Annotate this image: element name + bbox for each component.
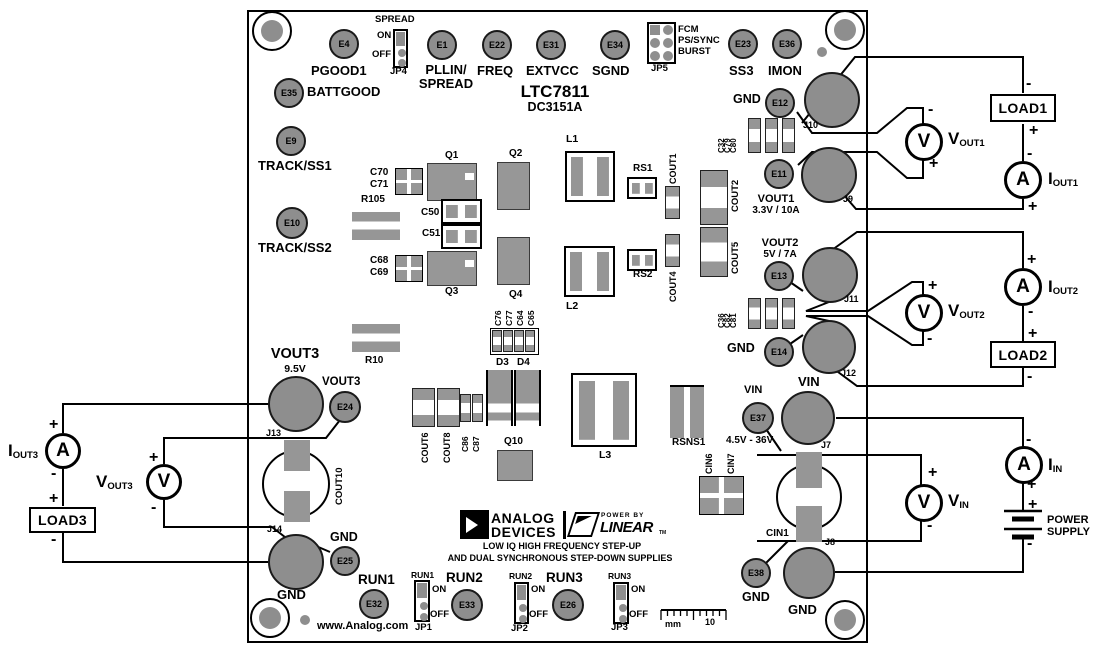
jp3-on-label: ON <box>631 585 645 595</box>
power-supply-label: POWER SUPPLY <box>1047 515 1100 538</box>
ruler-mark-label: 10 <box>705 618 715 628</box>
jp1-pin2 <box>420 602 428 610</box>
refdes-d4: D4 <box>517 358 530 369</box>
testpoint-e10: E10 <box>276 207 308 239</box>
jp3-shunt <box>616 585 626 600</box>
testpoint-e37: E37 <box>742 402 774 434</box>
load1-minus: - <box>1026 76 1031 92</box>
refdes-r10: R10 <box>365 356 383 367</box>
refdes-q4: Q4 <box>509 290 522 301</box>
refdes-cout6: COUT6 <box>421 432 430 463</box>
jp5-shunt <box>650 25 660 35</box>
via-dot-top-right <box>817 47 827 57</box>
ammeter-iin-label: IIN <box>1048 456 1062 474</box>
jp1-id: JP1 <box>415 623 432 633</box>
voltmeter-vout3: V <box>146 464 182 500</box>
testpoint-e36: E36 <box>772 29 802 59</box>
capacitor-c82 <box>765 298 778 329</box>
jp2-title: RUN2 <box>509 572 532 581</box>
load1-plus: + <box>1029 123 1038 139</box>
ammeter-iout2-label-sub: OUT2 <box>1053 286 1078 297</box>
voltmeter-vout2: V <box>905 294 943 332</box>
testpoint-e14: E14 <box>764 337 794 367</box>
board-tagline-line2: AND DUAL SYNCHRONOUS STEP-DOWN SUPPLIES <box>432 554 688 564</box>
inductor-l2 <box>564 246 615 297</box>
load2-minus: - <box>1027 369 1032 385</box>
rail-vout2-label: VOUT2 5V / 7A <box>749 238 811 261</box>
voltmeter-vout2-glyph: V <box>918 302 931 324</box>
testpoint-e12: E12 <box>765 88 795 118</box>
capacitor-c81 <box>782 298 795 329</box>
connector-j7-label: J7 <box>821 441 831 451</box>
via-dot-bottom-left <box>300 615 310 625</box>
jp2-header <box>514 582 529 624</box>
refdes-cout10: COUT10 <box>335 468 345 505</box>
brand-devices: DEVICES <box>491 525 556 540</box>
ammeter-iout1-label-sub: OUT1 <box>1053 178 1078 189</box>
brand-linear-tm: TM <box>659 531 666 536</box>
voltmeter-vout3-minus: - <box>151 500 156 516</box>
testpoint-e31-label: EXTVCC <box>526 64 579 78</box>
jp2-shunt <box>517 585 526 600</box>
voltmeter-vout2-minus: - <box>927 331 932 347</box>
load2-plus: + <box>1028 326 1037 342</box>
jp5-pin5 <box>650 51 660 61</box>
testpoint-e35: E35 <box>274 78 304 108</box>
ammeter-iout1-minus: - <box>1027 146 1032 162</box>
refdes-d3: D3 <box>496 358 509 369</box>
testpoint-e1-label: PLLIN/ SPREAD <box>412 63 480 91</box>
jp4-title: SPREAD <box>375 15 415 25</box>
rail-vin-label: VIN <box>798 375 820 389</box>
refdes-q2: Q2 <box>509 149 522 160</box>
connector-j8-label: J8 <box>825 538 835 548</box>
testpoint-e1-label-line2: SPREAD <box>412 77 480 91</box>
ammeter-iout2-label: IOUT2 <box>1048 278 1078 296</box>
testpoint-e34: E34 <box>600 30 630 60</box>
capacitor-c36 <box>748 298 761 329</box>
mounting-hole-bottom-left-pad <box>259 607 281 629</box>
testpoint-e38-label: GND <box>742 591 770 605</box>
jp5-id: JP5 <box>651 64 668 74</box>
connector-j12-label: J12 <box>841 369 856 379</box>
capacitor-c68-c69 <box>395 255 423 282</box>
testpoint-e1-label-line1: PLLIN/ <box>412 63 480 77</box>
voltmeter-vout2-label: VOUT2 <box>948 302 985 320</box>
capacitor-cout2 <box>700 170 728 225</box>
rail-vout1-label: VOUT1 3.3V / 10A <box>745 194 807 217</box>
connector-j9-label: J9 <box>843 195 853 205</box>
jp1-title: RUN1 <box>411 571 434 580</box>
mosfet-q4 <box>497 237 530 285</box>
ammeter-iin-label-sub: IN <box>1053 464 1063 475</box>
rail-vout1-spec: 3.3V / 10A <box>745 206 807 217</box>
voltmeter-vin-plus: + <box>928 465 937 481</box>
refdes-q10: Q10 <box>504 437 523 448</box>
testpoint-e37-label: VIN <box>744 385 762 397</box>
testpoint-e25: E25 <box>330 546 360 576</box>
testpoint-e24-label: VOUT3 <box>322 376 360 388</box>
testpoint-e32-label: RUN1 <box>358 573 395 588</box>
jp5-option-fcm: FCM <box>678 25 699 35</box>
refdes-cout1: COUT1 <box>669 153 678 184</box>
refdes-c51: C51 <box>422 229 440 240</box>
ammeter-iout3: A <box>45 433 81 469</box>
testpoint-e26-label: RUN3 <box>546 571 583 586</box>
refdes-c64: C64 <box>516 310 525 326</box>
ammeter-iout1: A <box>1004 161 1042 199</box>
refdes-c80: C80 <box>730 138 738 153</box>
refdes-l2: L2 <box>566 301 578 312</box>
testpoint-e9: E9 <box>276 126 306 156</box>
ruler-unit-label: mm <box>665 620 681 630</box>
capacitor-c32 <box>748 118 761 153</box>
pad-j13 <box>268 376 324 432</box>
jp4-header <box>393 29 408 68</box>
capacitor-cout5 <box>700 227 728 277</box>
jp1-on-label: ON <box>432 585 446 595</box>
jp4-off-label: OFF <box>372 50 391 60</box>
voltmeter-vin-label-sub: IN <box>959 500 969 511</box>
voltmeter-vout2-label-main: V <box>948 301 959 320</box>
mosfet-q3 <box>427 251 477 286</box>
refdes-c50: C50 <box>421 208 439 219</box>
refdes-cout2: COUT2 <box>731 180 741 212</box>
rail-vin-spec: 4.5V - 36V <box>726 436 773 447</box>
jp4-on-label: ON <box>377 31 391 41</box>
refdes-cin1: CIN1 <box>766 529 789 540</box>
testpoint-e33: E33 <box>451 589 483 621</box>
mounting-hole-bottom-right-pad <box>834 609 856 631</box>
ammeter-iout1-label: IOUT1 <box>1048 170 1078 188</box>
testpoint-e38: E38 <box>741 558 771 588</box>
jp3-pin2 <box>619 604 627 612</box>
mounting-hole-top-left-pad <box>261 20 283 42</box>
capacitor-cout10-pad-bottom <box>284 491 310 522</box>
ammeter-iout3-glyph: A <box>56 440 70 462</box>
testpoint-e31: E31 <box>536 30 566 60</box>
testpoint-e26: E26 <box>552 589 584 621</box>
jp2-on-label: ON <box>531 585 545 595</box>
demo-board-figure: LTC7811 DC3151A E4 PGOOD1 E1 PLLIN/ SPRE… <box>0 0 1100 649</box>
voltmeter-vin: V <box>905 484 943 522</box>
testpoint-e13: E13 <box>764 261 794 291</box>
voltmeter-vout3-glyph: V <box>158 471 171 493</box>
voltmeter-vin-label-main: V <box>948 491 959 510</box>
voltmeter-vout1-label: VOUT1 <box>948 130 985 148</box>
rail-vout3-name: VOUT3 <box>266 347 324 363</box>
capacitor-c86 <box>460 394 471 422</box>
refdes-q3: Q3 <box>445 287 458 298</box>
mosfet-q1 <box>427 163 477 201</box>
voltmeter-vout1-glyph: V <box>918 131 931 153</box>
jp5-pin4 <box>663 38 673 48</box>
rail-gnd-j14-label: GND <box>277 588 306 602</box>
rail-gnd-input-label: GND <box>788 603 817 617</box>
jp4-pin2 <box>398 49 406 57</box>
refdes-c68: C68 <box>370 256 388 267</box>
testpoint-e11: E11 <box>764 159 794 189</box>
load3-box: LOAD3 <box>29 507 96 533</box>
testpoint-e36-label: IMON <box>768 64 802 78</box>
voltmeter-vout1-plus: + <box>929 156 938 172</box>
jp3-id: JP3 <box>611 623 628 633</box>
mosfet-q2 <box>497 162 530 210</box>
rail-vout3-spec: 9.5V <box>266 364 324 375</box>
testpoint-e12-label: GND <box>733 93 761 107</box>
refdes-l3: L3 <box>599 450 611 461</box>
refdes-c71: C71 <box>370 180 388 191</box>
connector-j11-label: J11 <box>844 295 859 305</box>
testpoint-e25-label: GND <box>330 531 358 545</box>
resistor-rs1 <box>627 177 657 199</box>
mosfet-q10 <box>497 450 533 481</box>
capacitor-cout8 <box>437 388 460 427</box>
ammeter-iout3-minus: - <box>51 466 56 482</box>
board-part-number: LTC7811 <box>505 83 605 101</box>
voltmeter-vout3-plus: + <box>149 450 158 466</box>
jp5-option-pssync: PS/SYNC <box>678 36 720 46</box>
jp1-off-label: OFF <box>430 610 449 620</box>
brand-linear: LINEAR <box>600 520 653 536</box>
voltmeter-vin-minus: - <box>927 518 932 534</box>
jp3-title: RUN3 <box>608 572 631 581</box>
refdes-rs1: RS1 <box>633 164 652 175</box>
voltmeter-vout1-minus: - <box>928 102 933 118</box>
jp5-pin3 <box>650 38 660 48</box>
capacitor-c79 <box>765 118 778 153</box>
jp2-off-label: OFF <box>529 610 548 620</box>
jp3-off-label: OFF <box>629 610 648 620</box>
voltmeter-vout3-label-main: V <box>96 472 107 491</box>
jp4-shunt <box>396 32 405 46</box>
jp1-pin3 <box>420 613 428 621</box>
capacitor-cout1 <box>665 186 680 219</box>
mounting-hole-top-right-pad <box>834 19 856 41</box>
inductor-l3 <box>571 373 637 447</box>
refdes-c86: C86 <box>461 436 470 452</box>
capacitor-c70-c71 <box>395 168 423 195</box>
inductor-l1 <box>565 151 615 202</box>
ammeter-iin: A <box>1005 446 1043 484</box>
load3-plus: + <box>49 491 58 507</box>
capacitor-c51 <box>441 224 482 249</box>
voltmeter-vin-label: VIN <box>948 492 969 510</box>
testpoint-e22: E22 <box>482 30 512 60</box>
jp5-pin2 <box>663 25 673 35</box>
ammeter-iout1-plus: + <box>1028 199 1037 215</box>
testpoint-e9-label: TRACK/SS1 <box>258 159 332 173</box>
refdes-q1: Q1 <box>445 151 458 162</box>
capacitor-cin6-cin7 <box>699 476 744 515</box>
refdes-c69: C69 <box>370 268 388 279</box>
connector-j13-label: J13 <box>266 429 281 439</box>
refdes-r105: R105 <box>361 195 385 206</box>
jp2-pin2 <box>519 604 527 612</box>
testpoint-e24: E24 <box>329 391 361 423</box>
diode-d4 <box>514 370 541 426</box>
brand-power-by: POWER BY <box>601 512 644 519</box>
jp2-id: JP2 <box>511 624 528 634</box>
jp4-id: JP4 <box>390 67 407 77</box>
resistor-r105 <box>352 212 400 240</box>
refdes-cin7: CIN7 <box>727 453 736 474</box>
resistor-rs2 <box>627 249 657 271</box>
testpoint-e4-label: PGOOD1 <box>311 64 367 78</box>
board-tagline-line1: LOW IQ HIGH FREQUENCY STEP-UP <box>462 542 662 552</box>
testpoint-e23-label: SS3 <box>729 64 754 78</box>
pad-j7 <box>781 391 835 445</box>
jp5-option-burst: BURST <box>678 47 711 57</box>
ammeter-iout2: A <box>1004 268 1042 306</box>
voltmeter-vin-glyph: V <box>918 492 931 514</box>
ammeter-iout1-glyph: A <box>1016 169 1030 191</box>
voltmeter-vout3-label-sub: OUT3 <box>107 481 132 492</box>
refdes-c65: C65 <box>527 310 536 326</box>
refdes-cout5: COUT5 <box>731 242 741 274</box>
ammeter-iout3-label-sub: OUT3 <box>13 450 38 461</box>
testpoint-e22-label: FREQ <box>477 64 513 78</box>
refdes-cout8: COUT8 <box>443 432 452 463</box>
connector-j10-label: J10 <box>803 121 818 131</box>
resistor-r10 <box>352 324 400 352</box>
ammeter-iin-glyph: A <box>1017 454 1031 476</box>
jp1-header <box>414 580 430 622</box>
testpoint-e33-label: RUN2 <box>446 571 483 586</box>
voltmeter-vout3-label: VOUT3 <box>96 473 133 491</box>
capacitor-bank-c76-c65 <box>490 328 539 355</box>
testpoint-e1: E1 <box>427 30 457 60</box>
refdes-c81: C81 <box>730 313 738 328</box>
website-label: www.Analog.com <box>317 621 408 633</box>
testpoint-e4: E4 <box>329 29 359 59</box>
connector-j14-label: J14 <box>267 525 282 535</box>
refdes-rs2: RS2 <box>633 270 652 281</box>
ammeter-iout2-minus: - <box>1028 304 1033 320</box>
testpoint-e34-label: SGND <box>592 64 630 78</box>
brand-divider <box>563 511 566 539</box>
power-supply-plus: + <box>1028 497 1037 513</box>
testpoint-e23: E23 <box>728 29 758 59</box>
ammeter-iin-plus: + <box>1027 477 1036 493</box>
ammeter-iout3-label: IOUT3 <box>8 442 38 460</box>
ammeter-iout2-glyph: A <box>1016 276 1030 298</box>
refdes-c87: C87 <box>472 436 481 452</box>
refdes-c76: C76 <box>494 310 503 326</box>
voltmeter-vout1-label-main: V <box>948 129 959 148</box>
capacitor-c87 <box>472 394 483 422</box>
refdes-l1: L1 <box>566 134 578 145</box>
refdes-cin6: CIN6 <box>705 453 714 474</box>
jp2-pin3 <box>519 615 527 623</box>
voltmeter-vout2-label-sub: OUT2 <box>959 310 984 321</box>
voltmeter-vout2-plus: + <box>928 278 937 294</box>
voltmeter-vout1-label-sub: OUT1 <box>959 138 984 149</box>
ammeter-iout3-plus: + <box>49 417 58 433</box>
refdes-cout4: COUT4 <box>669 271 678 302</box>
load1-box: LOAD1 <box>990 94 1056 122</box>
diode-d3 <box>486 370 513 426</box>
analog-devices-logo-icon <box>460 510 489 539</box>
testpoint-e10-label: TRACK/SS2 <box>258 241 332 255</box>
pad-gnd-input <box>783 547 835 599</box>
jp5-pin6 <box>663 51 673 61</box>
board-model-number: DC3151A <box>505 101 605 115</box>
pad-j12 <box>802 320 856 374</box>
refdes-c77: C77 <box>505 310 514 326</box>
capacitor-cout10-pad-top <box>284 440 310 471</box>
jp1-shunt <box>417 583 427 598</box>
load2-box: LOAD2 <box>990 341 1056 368</box>
testpoint-e32: E32 <box>359 589 389 619</box>
power-supply-minus: - <box>1027 536 1032 552</box>
testpoint-e35-label: BATTGOOD <box>307 85 380 99</box>
ammeter-iout2-plus: + <box>1027 252 1036 268</box>
capacitor-cin1-pad-bottom <box>796 506 822 542</box>
rail-vout2-spec: 5V / 7A <box>749 250 811 261</box>
capacitor-cin1-pad-top <box>796 452 822 488</box>
capacitor-cout6 <box>412 388 435 427</box>
capacitor-cout4 <box>665 234 680 267</box>
load3-minus: - <box>51 532 56 548</box>
resistor-rsns1 <box>670 385 704 438</box>
testpoint-e14-label: GND <box>727 342 755 356</box>
pad-j14 <box>268 534 324 590</box>
capacitor-c80 <box>782 118 795 153</box>
capacitor-c50 <box>441 199 482 224</box>
refdes-rsns1: RSNS1 <box>672 438 705 449</box>
jp3-header <box>613 582 629 624</box>
refdes-c70: C70 <box>370 168 388 179</box>
